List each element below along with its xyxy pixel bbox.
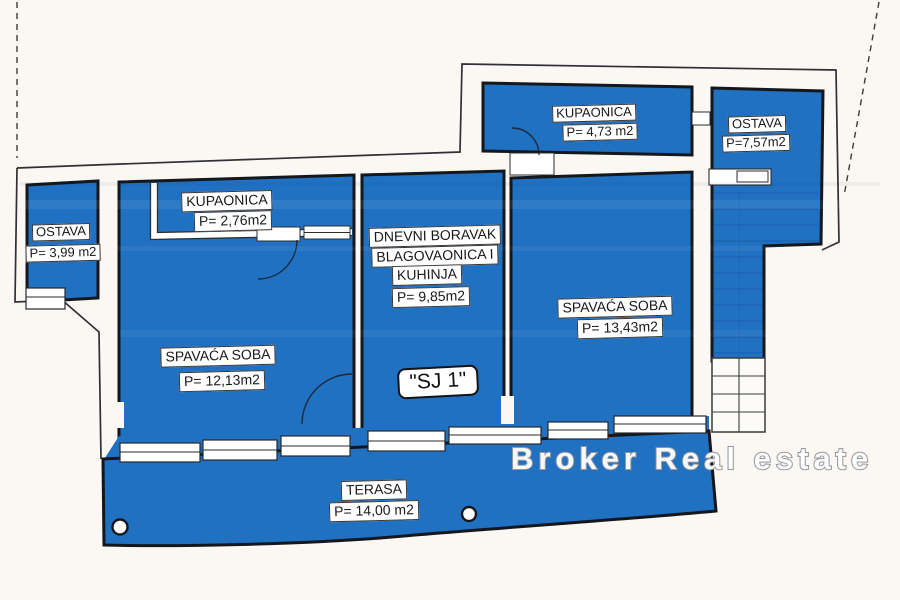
room-label-kupaonica-north-name: KUPAONICA xyxy=(552,104,636,123)
window xyxy=(26,288,65,309)
window xyxy=(614,416,706,433)
door-sill-corridor xyxy=(692,112,710,125)
unit-badge: "SJ 1" xyxy=(397,364,479,399)
room-label-dnevni-line3: KUHINJA xyxy=(392,264,462,285)
room-label-ostava-north-name: OSTAVA xyxy=(728,115,786,133)
room-label-terasa-name: TERASA xyxy=(341,479,408,500)
window-ostava-west xyxy=(26,288,65,309)
door-opening-kupaonica-north xyxy=(510,153,554,175)
room-label-spavaca-east-name: SPAVAĆA SOBA xyxy=(557,296,673,319)
room-label-kupaonica-north-area: P= 4,73 m2 xyxy=(562,123,637,142)
room-label-spavaca-west-area: P= 12,13m2 xyxy=(179,370,265,392)
room-label-ostava-west-name: OSTAVA xyxy=(32,223,90,241)
window xyxy=(120,443,200,462)
dashed-line-top-right xyxy=(844,2,879,196)
room-label-kupaonica-west-area: P= 2,76m2 xyxy=(194,210,273,232)
floor-plan-image: Broker Real estate OSTAVA P= 3,99 m2 KUP… xyxy=(0,0,900,600)
room-label-ostava-north-area: P=7,57m2 xyxy=(722,134,790,152)
stairs xyxy=(712,358,765,432)
room-label-spavaca-west-name: SPAVAĆA SOBA xyxy=(160,345,276,368)
door-sill xyxy=(737,171,768,182)
column xyxy=(113,520,128,535)
watermark-text: Broker Real estate xyxy=(511,441,873,476)
room-ostava-west xyxy=(27,181,98,302)
room-label-dnevni-area: P= 9,85m2 xyxy=(392,286,471,308)
room-label-kupaonica-west-name: KUPAONICA xyxy=(181,190,273,212)
door-opening-dnevni-spavaca xyxy=(501,396,514,424)
room-label-ostava-west-area: P= 3,99 m2 xyxy=(25,244,100,263)
column xyxy=(462,507,476,521)
door-opening-entry xyxy=(114,402,124,428)
window xyxy=(548,422,608,439)
room-label-spavaca-east-area: P= 13,43m2 xyxy=(577,317,663,339)
room-label-terasa-area: P= 14,00 m2 xyxy=(329,500,419,522)
